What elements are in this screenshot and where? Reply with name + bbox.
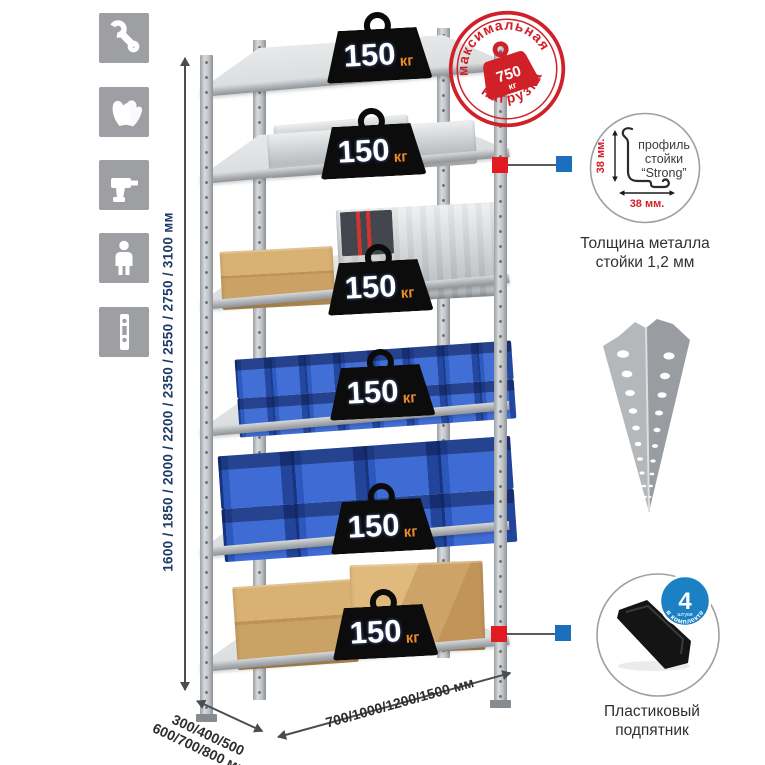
post-profile-detail: 38 мм. 38 мм. профиль стойки “Strong” [588, 111, 702, 225]
width-dimension-label: 700/1000/1200/1500 мм [324, 675, 476, 731]
connector-line-top [508, 164, 558, 166]
connector-line-bottom [507, 633, 557, 635]
stamp-weight-handle [494, 42, 508, 56]
person-icon [99, 233, 149, 283]
shelf-load-badge-2: 150кг [317, 105, 426, 179]
post-foot-right [490, 700, 511, 708]
shelf-load-badge-6: 150кг [329, 586, 438, 660]
rack-post-front-left [200, 55, 213, 715]
rack-post-front-right [494, 44, 507, 701]
shelf-load-badge-5: 150кг [327, 480, 436, 554]
profile-caption: Толщина металла стойки 1,2 мм [555, 235, 735, 273]
connector-red-bottom [491, 626, 507, 642]
shelf-load-badge-3: 150кг [324, 241, 433, 315]
angle-post-image [599, 314, 695, 518]
drill-icon [99, 160, 149, 210]
profile-horizontal-dim: 38 мм. [630, 198, 665, 210]
qty-badge-word: штуки [677, 612, 692, 618]
wrench-icon [99, 13, 149, 63]
product-infographic: 150кг 150кг 150кг 150кг 150кг 150кг макс… [0, 0, 765, 765]
connector-red-top [492, 157, 508, 173]
profile-vertical-dim: 38 мм. [595, 139, 607, 174]
profile-label-1: профиль [638, 138, 690, 152]
foot-caption: Пластиковый подпятник [562, 703, 742, 741]
height-dimension-line [184, 58, 186, 690]
profile-label-3: “Strong” [641, 166, 686, 180]
shelf-load-badge-1: 150кг [323, 9, 432, 83]
connector-blue-top [556, 156, 572, 172]
height-dimension-label: 1600 / 1850 / 2000 / 2200 / 2350 / 2550 … [161, 212, 176, 572]
shelf-load-badge-4: 150кг [326, 346, 435, 420]
connector-blue-bottom [555, 625, 571, 641]
gloves-icon [99, 87, 149, 137]
profile-label-2: стойки [645, 152, 683, 166]
qty-badge-value: 4 [678, 588, 692, 615]
qty-badge: 4 штуки в комплекте [660, 576, 710, 626]
plastic-foot-detail: 4 штуки в комплекте [592, 569, 724, 701]
perforated-post-icon [99, 307, 149, 357]
